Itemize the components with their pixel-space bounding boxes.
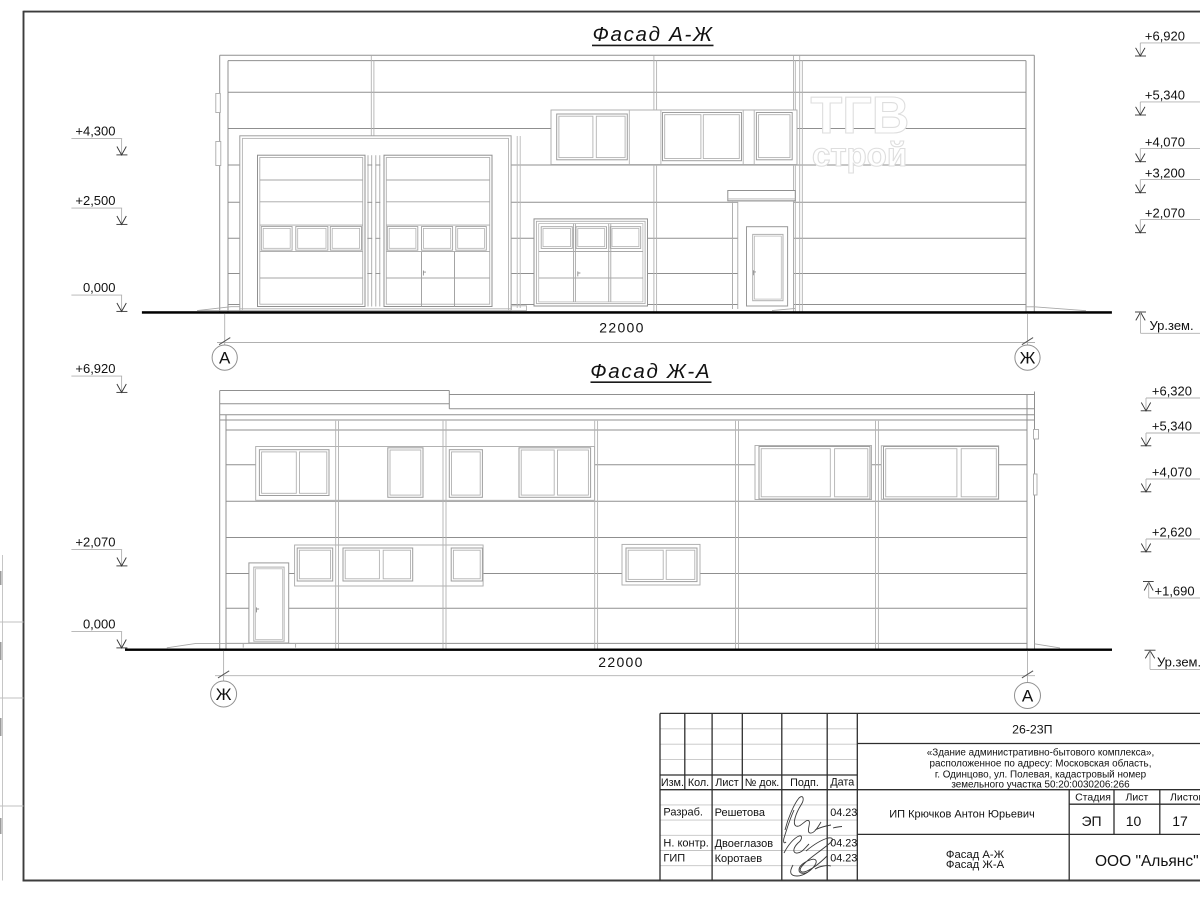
svg-text:расположенное по адресу: Моско: расположенное по адресу: Московская обла… — [930, 759, 1152, 770]
svg-text:+2,500: +2,500 — [75, 193, 115, 208]
svg-text:10: 10 — [1126, 813, 1142, 829]
svg-text:+4,070: +4,070 — [1152, 465, 1192, 480]
svg-text:26-23П: 26-23П — [1012, 723, 1052, 737]
svg-text:+2,620: +2,620 — [1152, 525, 1192, 540]
svg-text:0,000: 0,000 — [83, 280, 116, 295]
svg-text:Разраб.: Разраб. — [663, 807, 703, 819]
svg-text:строй: строй — [812, 136, 907, 173]
svg-text:04.23: 04.23 — [830, 837, 857, 849]
svg-text:Ур.зем.: Ур.зем. — [1150, 318, 1194, 333]
svg-text:+5,340: +5,340 — [1145, 88, 1185, 103]
svg-text:Фасад Ж-А: Фасад Ж-А — [590, 360, 711, 383]
svg-text:+1,690: +1,690 — [1155, 584, 1195, 599]
svg-text:Фасад Ж-А: Фасад Ж-А — [946, 859, 1005, 871]
svg-text:А: А — [1022, 686, 1034, 705]
svg-text:ИП Крючков Антон Юрьевич: ИП Крючков Антон Юрьевич — [889, 808, 1034, 820]
svg-text:Коротаев: Коротаев — [715, 853, 763, 865]
svg-text:Кол.: Кол. — [688, 777, 709, 789]
svg-text:+2,070: +2,070 — [1145, 205, 1185, 220]
svg-text:Дата: Дата — [830, 776, 854, 788]
svg-text:Н. контр.: Н. контр. — [663, 837, 708, 849]
svg-text:22000: 22000 — [598, 654, 643, 670]
svg-text:Двоеглазов: Двоеглазов — [715, 838, 774, 850]
svg-text:Ур.зем.: Ур.зем. — [1157, 654, 1200, 669]
svg-text:04.23: 04.23 — [830, 807, 857, 819]
svg-text:+5,340: +5,340 — [1152, 419, 1192, 434]
svg-text:Лист: Лист — [715, 777, 739, 789]
svg-text:0,000: 0,000 — [83, 617, 116, 632]
svg-text:№ док.: № док. — [745, 777, 780, 789]
svg-text:Стадия: Стадия — [1075, 792, 1111, 804]
svg-text:ГИП: ГИП — [663, 853, 685, 865]
svg-text:+6,320: +6,320 — [1152, 384, 1192, 399]
svg-text:04.23: 04.23 — [830, 853, 857, 865]
svg-text:ЭП: ЭП — [1081, 813, 1101, 829]
svg-text:17: 17 — [1172, 813, 1188, 829]
svg-text:Ж: Ж — [216, 685, 232, 704]
svg-text:+2,070: +2,070 — [75, 535, 115, 550]
svg-text:+6,920: +6,920 — [1145, 29, 1185, 44]
svg-text:+6,920: +6,920 — [75, 361, 115, 376]
svg-text:земельного участка 50:20:00302: земельного участка 50:20:0030206:266 — [951, 780, 1130, 791]
svg-text:+3,200: +3,200 — [1145, 165, 1185, 180]
svg-text:Лист: Лист — [1125, 792, 1148, 804]
svg-text:22000: 22000 — [599, 319, 644, 335]
svg-text:Фасад А-Ж: Фасад А-Ж — [593, 23, 714, 46]
svg-text:+4,070: +4,070 — [1145, 134, 1185, 149]
svg-text:Изм.: Изм. — [661, 777, 684, 789]
svg-text:Листов: Листов — [1170, 792, 1200, 804]
svg-text:А: А — [219, 348, 231, 367]
svg-text:ООО "Альянс": ООО "Альянс" — [1095, 853, 1199, 870]
svg-text:Подп.: Подп. — [790, 777, 819, 789]
svg-text:«Здание административно-бытово: «Здание административно-бытового комплек… — [927, 747, 1155, 758]
svg-text:Ж: Ж — [1020, 348, 1036, 367]
svg-text:Решетова: Решетова — [715, 807, 766, 819]
svg-text:+4,300: +4,300 — [75, 124, 115, 139]
